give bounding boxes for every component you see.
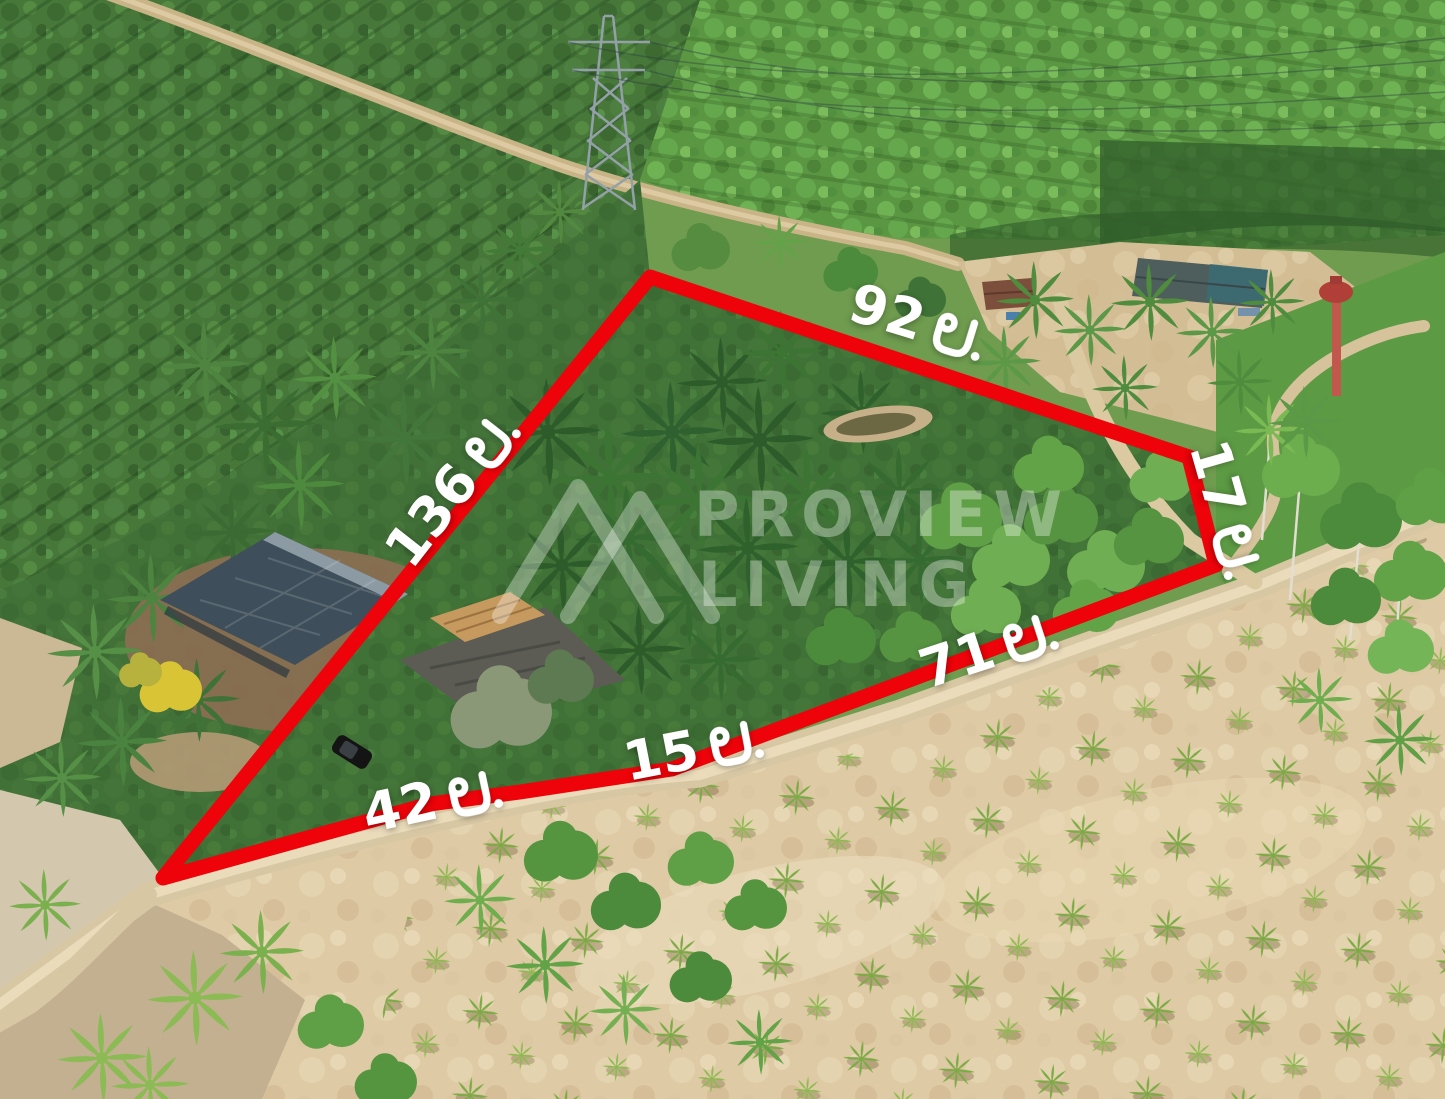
aerial-photo: PROVIEW LIVING 92 17 71 15 42 136 [0, 0, 1445, 1099]
thai-meter-unit-icon [706, 718, 766, 771]
watermark-text-line1: PROVIEW [694, 484, 1069, 546]
thai-meter-unit-icon [445, 768, 506, 822]
measurement-value: 15 [619, 723, 703, 790]
watermark-text-line2: LIVING [698, 554, 976, 616]
measurement-value: 42 [358, 774, 443, 842]
